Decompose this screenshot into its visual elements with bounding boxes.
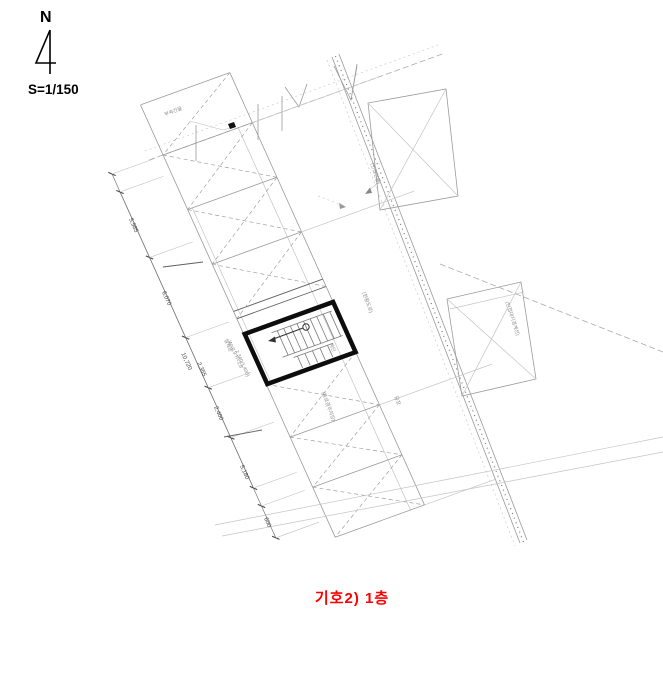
annotation: 부속건물 <box>163 105 183 118</box>
corridor-line <box>238 128 410 510</box>
dimension-label: 600 <box>262 517 272 529</box>
figure-caption: 기호2) 1층 <box>315 590 389 607</box>
dimension-label: 10,720 <box>179 352 192 372</box>
fence-ticks <box>196 96 282 161</box>
dimension-label: 2,355 <box>195 362 207 379</box>
dimension-label: 6,070 <box>160 291 172 308</box>
strip-left-edge <box>141 105 336 537</box>
north-label: N <box>40 9 52 26</box>
dimension-label: 2,400 <box>212 406 224 423</box>
annotation: (현황도로) <box>360 291 374 314</box>
lower-boundary-lines <box>215 264 663 536</box>
adjacent-building-mid <box>447 282 536 396</box>
annotation: (인접대지경계선) <box>504 301 522 337</box>
top-boundary-lines <box>145 44 445 161</box>
scale-label: S=1/150 <box>28 82 79 97</box>
stair-direction-arrowhead <box>268 337 276 343</box>
leader-arrowhead <box>339 203 346 209</box>
floor-plan-canvas: N S=1/150 <box>0 0 663 700</box>
road-lines <box>327 54 527 546</box>
north-arrow-glyph <box>36 30 56 74</box>
dimension-chain: 5,985 6,070 10,720 2,355 2,400 5,180 600 <box>108 158 319 539</box>
subject-unit-outline <box>245 302 356 384</box>
tiny-annotations: 부속건물 (인접건물) (현황도로) (통로겸주차장) 철제문 W=0.9 H=… <box>163 105 521 423</box>
building-strip <box>141 73 496 538</box>
subject-unit <box>245 302 356 384</box>
dimension-label: 5,985 <box>127 218 139 235</box>
north-arrow: N <box>36 9 56 74</box>
v-marks <box>285 64 357 107</box>
drawing-page: N S=1/150 <box>0 0 663 700</box>
dimension-label: 5,180 <box>238 465 250 482</box>
annotation: 계단 <box>327 342 337 354</box>
